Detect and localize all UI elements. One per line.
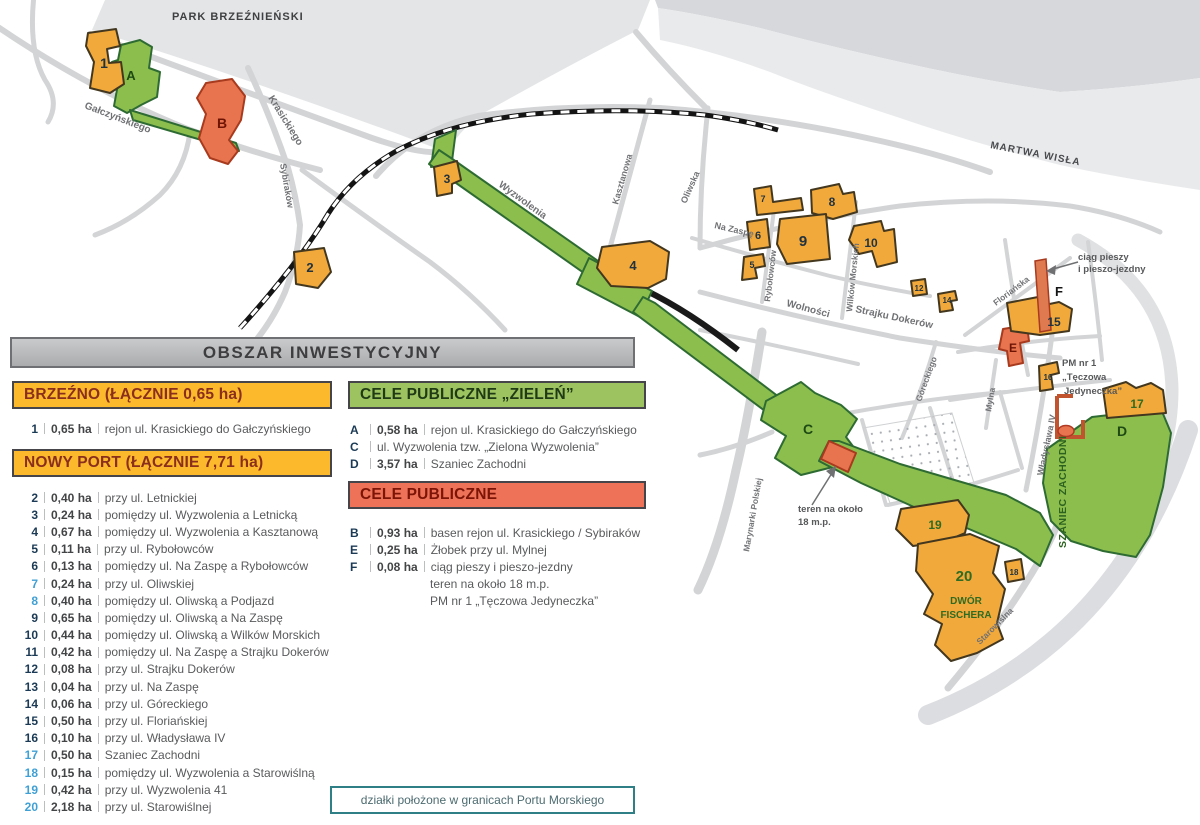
- plot-list-item: 6 0,13 ha pomiędzy ul. Na Zaspę a Ryboło…: [14, 558, 329, 575]
- plot-area: 0,50 ha: [51, 748, 92, 762]
- plot-location: przy ul. Góreckiego: [105, 697, 208, 711]
- plot-label-16: 16: [1044, 373, 1053, 382]
- plot-area: 0,24 ha: [51, 577, 92, 591]
- section-header-nowy-port: NOWY PORT (ŁĄCZNIE 7,71 ha): [12, 449, 332, 477]
- plot-location: basen rejon ul. Krasickiego / Sybiraków: [431, 526, 640, 540]
- plot-label-C: C: [803, 421, 813, 437]
- plot-list-item: 1 0,65 ha rejon ul. Krasickiego do Gałcz…: [14, 420, 311, 437]
- park-label: PARK BRZEŹNIEŃSKI: [172, 10, 304, 23]
- plot-list-item: 19 0,42 ha przy ul. Wyzwolenia 41: [14, 781, 329, 798]
- plot-location: pomiędzy ul. Wyzwolenia a Kasztanową: [105, 525, 318, 539]
- plot-number: 18: [14, 766, 38, 780]
- separator: [44, 784, 45, 795]
- plot-number: 5: [14, 542, 38, 556]
- plot-number: 4: [14, 525, 38, 539]
- separator: [370, 441, 371, 452]
- section-header-cele-publiczne-zielen: CELE PUBLICZNE „ZIELEŃ”: [348, 381, 646, 409]
- plot-label-20: 20: [956, 568, 973, 585]
- pm-note-line2: „Tęczowa: [1062, 372, 1107, 383]
- plot-number: 10: [14, 628, 38, 642]
- plot-list-item: E 0,25 ha Żłobek przy ul. Mylnej: [350, 541, 640, 558]
- brzezno-list: 1 0,65 ha rejon ul. Krasickiego do Gałcz…: [14, 420, 311, 437]
- plot-area: 0,44 ha: [51, 628, 92, 642]
- plot-label-4: 4: [629, 258, 637, 273]
- street-label-mylna: Mylna: [983, 387, 997, 413]
- szaniec-zachodni-label: SZANIEC ZACHODNI: [1057, 436, 1069, 548]
- plot-list-item: 2 0,40 ha przy ul. Letnickiej: [14, 489, 329, 506]
- plot-list-item: 4 0,67 ha pomiędzy ul. Wyzwolenia a Kasz…: [14, 523, 329, 540]
- separator: [44, 664, 45, 675]
- separator: [370, 544, 371, 555]
- plot-location: pomiędzy ul. Wyzwolenia a Letnicką: [105, 508, 298, 522]
- pm-note-line3: Jedyneczka”: [1064, 386, 1122, 397]
- separator: [97, 544, 98, 555]
- plot-label-F: F: [1055, 284, 1063, 299]
- dwor-fischera-line2: FISCHERA: [940, 610, 991, 621]
- section-header-brzezno: BRZEŹNO (ŁĄCZNIE 0,65 ha): [12, 381, 332, 409]
- plot-area: 0,42 ha: [51, 783, 92, 797]
- separator: [370, 561, 371, 572]
- plot-location: rejon ul. Krasickiego do Gałczyńskiego: [431, 423, 637, 437]
- separator: [370, 458, 371, 469]
- separator: [98, 647, 99, 658]
- separator: [44, 733, 45, 744]
- plot-list-item: 7 0,24 ha przy ul. Oliwskiej: [14, 575, 329, 592]
- plot-label-7: 7: [760, 194, 765, 204]
- separator: [44, 509, 45, 520]
- plot-label-2: 2: [306, 260, 313, 275]
- plot-location: Szaniec Zachodni: [105, 748, 200, 762]
- investment-map-infographic: PARK BRZEŹNIEŃSKI MARTWA WISŁA Gałczyńsk…: [0, 0, 1200, 825]
- legend-title: OBSZAR INWESTYCYJNY: [10, 337, 635, 368]
- plot-list-item: 13 0,04 ha przy ul. Na Zaspę: [14, 678, 329, 695]
- plot-area: 0,10 ha: [51, 731, 92, 745]
- separator: [98, 509, 99, 520]
- plot-list-item: 5 0,11 ha przy ul. Rybołowców: [14, 541, 329, 558]
- plot-letter: D: [350, 457, 364, 471]
- plot-area: 0,11 ha: [51, 542, 91, 556]
- plot-location: PM nr 1 „Tęczowa Jedyneczka”: [430, 594, 598, 608]
- plot-number: 8: [14, 594, 38, 608]
- plot-area: 0,65 ha: [51, 422, 92, 436]
- separator: [370, 527, 371, 538]
- separator: [44, 630, 45, 641]
- plot-list-item: 8 0,40 ha pomiędzy ul. Oliwską a Podjazd: [14, 592, 329, 609]
- street-label-wilkow-morskich: Wilków Morskich: [844, 243, 861, 313]
- plot-list-item: C ul. Wyzwolenia tzw. „Zielona Wyzwoleni…: [350, 438, 637, 455]
- separator: [44, 698, 45, 709]
- plot-number: 11: [14, 645, 38, 659]
- plot-location: przy ul. Letnickiej: [105, 491, 197, 505]
- separator: [44, 526, 45, 537]
- plot-location: ciąg pieszy i pieszo-jezdny: [431, 560, 573, 574]
- plot-location: przy ul. Władysława IV: [105, 731, 226, 745]
- separator: [44, 578, 45, 589]
- teren-note-line2: 18 m.p.: [798, 517, 831, 528]
- plot-location: pomiędzy ul. Wyzwolenia a Starowiślną: [105, 766, 315, 780]
- road: [700, 108, 708, 248]
- separator: [98, 492, 99, 503]
- road: [95, 132, 190, 235]
- separator: [98, 561, 99, 572]
- dwor-fischera-line1: DWÓR: [950, 594, 982, 607]
- separator: [370, 424, 371, 435]
- plot-location: teren na około 18 m.p.: [430, 577, 549, 591]
- pm-building-oval: [1058, 426, 1074, 437]
- plot-location: pomiędzy ul. Na Zaspę a Rybołowców: [105, 559, 308, 573]
- ciag-note-line2: i pieszo-jezdny: [1078, 264, 1146, 275]
- separator: [98, 526, 99, 537]
- plot-list-item: 9 0,65 ha pomiędzy ul. Oliwską a Na Zasp…: [14, 609, 329, 626]
- plot-label-19: 19: [928, 518, 942, 532]
- plot-list-item: 10 0,44 ha pomiędzy ul. Oliwską a Wilków…: [14, 627, 329, 644]
- plot-area: 0,93 ha: [377, 526, 418, 540]
- plot-area: 0,15 ha: [51, 766, 92, 780]
- plot-list-item: 20 2,18 ha przy ul. Starowiślnej: [14, 798, 329, 815]
- road: [376, 107, 990, 176]
- plot-label-12: 12: [915, 284, 924, 293]
- plot-list-item: 11 0,42 ha pomiędzy ul. Na Zaspę a Straj…: [14, 644, 329, 661]
- plot-location: pomiędzy ul. Oliwską a Na Zaspę: [105, 611, 283, 625]
- plot-label-E: E: [1009, 341, 1017, 355]
- plot-list-item: 15 0,50 ha przy ul. Floriańskiej: [14, 712, 329, 729]
- teren-arrow: [812, 473, 832, 505]
- plot-location: przy ul. Rybołowców: [104, 542, 213, 556]
- plot-area: 0,08 ha: [377, 560, 418, 574]
- separator: [98, 750, 99, 761]
- separator: [44, 595, 45, 606]
- plot-area: 3,57 ha: [377, 457, 418, 471]
- plot-location: przy ul. Starowiślnej: [105, 800, 212, 814]
- plot-number: 6: [14, 559, 38, 573]
- plot-list-item: 12 0,08 ha przy ul. Strajku Dokerów: [14, 661, 329, 678]
- plot-location: pomiędzy ul. Oliwską a Podjazd: [105, 594, 274, 608]
- plot-list-item: B 0,93 ha basen rejon ul. Krasickiego / …: [350, 524, 640, 541]
- separator: [98, 595, 99, 606]
- plot-list-item: 18 0,15 ha pomiędzy ul. Wyzwolenia a Sta…: [14, 764, 329, 781]
- separator: [98, 612, 99, 623]
- plot-area: 0,40 ha: [51, 491, 92, 505]
- separator: [98, 733, 99, 744]
- plot-location: pomiędzy ul. Oliwską a Wilków Morskich: [105, 628, 320, 642]
- separator: [98, 423, 99, 434]
- cele-zielen-list: A 0,58 ha rejon ul. Krasickiego do Gałcz…: [350, 421, 637, 473]
- plot-area: 0,67 ha: [51, 525, 92, 539]
- separator: [98, 784, 99, 795]
- plot-area: 0,04 ha: [51, 680, 92, 694]
- separator: [44, 423, 45, 434]
- plot-area: 0,65 ha: [51, 611, 92, 625]
- plot-label-D: D: [1117, 423, 1127, 439]
- plot-number: 3: [14, 508, 38, 522]
- separator: [44, 612, 45, 623]
- plot-area: 0,50 ha: [51, 714, 92, 728]
- plot-list-item: 17 0,50 ha Szaniec Zachodni: [14, 747, 329, 764]
- teren-note-line1: teren na około: [798, 504, 863, 515]
- plot-area: 0,25 ha: [377, 543, 418, 557]
- plot-area: 0,42 ha: [51, 645, 92, 659]
- plot-location: przy ul. Floriańskiej: [105, 714, 208, 728]
- separator: [98, 630, 99, 641]
- plot-label-B: B: [217, 115, 227, 131]
- plot-label-10: 10: [864, 236, 878, 250]
- separator: [44, 647, 45, 658]
- plot-list-item: PM nr 1 „Tęczowa Jedyneczka”: [350, 593, 640, 610]
- plot-label-6: 6: [755, 230, 761, 242]
- plot-number: 16: [14, 731, 38, 745]
- port-boundary-note: działki położone w granicach Portu Morsk…: [330, 786, 635, 814]
- plot-label-9: 9: [799, 233, 807, 250]
- plot-label-18: 18: [1010, 568, 1019, 577]
- road: [608, 100, 650, 255]
- plot-number: 7: [14, 577, 38, 591]
- plot-list-item: 3 0,24 ha pomiędzy ul. Wyzwolenia a Letn…: [14, 506, 329, 523]
- nowy-port-list: 2 0,40 ha przy ul. Letnickiej 3 0,24 ha …: [14, 489, 329, 816]
- plot-number: 17: [14, 748, 38, 762]
- plot-list-item: F 0,08 ha ciąg pieszy i pieszo-jezdny: [350, 558, 640, 575]
- plot-area: 0,08 ha: [51, 662, 92, 676]
- separator: [98, 767, 99, 778]
- separator: [98, 698, 99, 709]
- plot-list-item: teren na około 18 m.p.: [350, 576, 640, 593]
- separator: [98, 578, 99, 589]
- plot-location: przy ul. Oliwskiej: [105, 577, 194, 591]
- separator: [424, 527, 425, 538]
- plot-label-A: A: [126, 68, 136, 83]
- plot-number: 19: [14, 783, 38, 797]
- plot-number: 20: [14, 800, 38, 814]
- separator: [98, 716, 99, 727]
- cele-publiczne-list: B 0,93 ha basen rejon ul. Krasickiego / …: [350, 524, 640, 610]
- plot-area: 0,40 ha: [51, 594, 92, 608]
- separator: [44, 801, 45, 812]
- plot-number: 2: [14, 491, 38, 505]
- plot-label-1: 1: [100, 55, 108, 71]
- plot-list-item: D 3,57 ha Szaniec Zachodni: [350, 455, 637, 472]
- plot-list-item: 16 0,10 ha przy ul. Władysława IV: [14, 730, 329, 747]
- plot-area: 0,13 ha: [51, 559, 92, 573]
- section-header-cele-publiczne: CELE PUBLICZNE: [348, 481, 646, 509]
- plot-number: 14: [14, 697, 38, 711]
- separator: [44, 767, 45, 778]
- street-label-goreckiego: Góreckiego: [913, 355, 938, 402]
- separator: [44, 492, 45, 503]
- plot-location: przy ul. Wyzwolenia 41: [105, 783, 228, 797]
- plot-number: 1: [14, 422, 38, 436]
- plot-list-item: 14 0,06 ha przy ul. Góreckiego: [14, 695, 329, 712]
- plot-location: Żłobek przy ul. Mylnej: [431, 543, 547, 557]
- plot-location: ul. Wyzwolenia tzw. „Zielona Wyzwolenia”: [377, 440, 599, 454]
- plot-label-3: 3: [444, 172, 451, 186]
- river-martwa-wisla: [655, 0, 1200, 190]
- street-label-strajku-dokerow: Strajku Dokerów: [854, 304, 934, 331]
- pm-note-line1: PM nr 1: [1062, 358, 1097, 369]
- plot-letter: E: [350, 543, 364, 557]
- plot-letter: C: [350, 440, 364, 454]
- plot-label-14: 14: [943, 296, 952, 305]
- plot-label-17: 17: [1130, 397, 1144, 411]
- plot-location: przy ul. Na Zaspę: [105, 680, 199, 694]
- separator: [424, 544, 425, 555]
- plot-location: przy ul. Strajku Dokerów: [105, 662, 235, 676]
- separator: [44, 544, 45, 555]
- separator: [98, 801, 99, 812]
- plot-number: 12: [14, 662, 38, 676]
- plot-area: 0,58 ha: [377, 423, 418, 437]
- plot-letter: B: [350, 526, 364, 540]
- street-label-marynarki-polskiej: Marynarki Polskiej: [741, 477, 764, 552]
- plot-number: 15: [14, 714, 38, 728]
- plot-letter: F: [350, 560, 364, 574]
- plot-list-item: A 0,58 ha rejon ul. Krasickiego do Gałcz…: [350, 421, 637, 438]
- plot-label-8: 8: [829, 195, 836, 209]
- separator: [44, 750, 45, 761]
- plot-label-5: 5: [749, 260, 754, 270]
- separator: [44, 681, 45, 692]
- plot-area: 2,18 ha: [51, 800, 92, 814]
- plot-letter: A: [350, 423, 364, 437]
- separator: [44, 561, 45, 572]
- plot-location: Szaniec Zachodni: [431, 457, 526, 471]
- separator: [98, 664, 99, 675]
- plot-area: 0,24 ha: [51, 508, 92, 522]
- plot-location: rejon ul. Krasickiego do Gałczyńskiego: [105, 422, 311, 436]
- separator: [98, 681, 99, 692]
- ciag-note-line1: ciąg pieszy: [1078, 252, 1129, 263]
- plot-number: 13: [14, 680, 38, 694]
- plot-location: pomiędzy ul. Na Zaspę a Strajku Dokerów: [105, 645, 329, 659]
- separator: [44, 716, 45, 727]
- road: [1000, 392, 1022, 468]
- separator: [424, 458, 425, 469]
- plot-area: 0,06 ha: [51, 697, 92, 711]
- plot-number: 9: [14, 611, 38, 625]
- plot-label-15: 15: [1047, 315, 1061, 329]
- railway: [240, 111, 778, 350]
- separator: [424, 561, 425, 572]
- separator: [424, 424, 425, 435]
